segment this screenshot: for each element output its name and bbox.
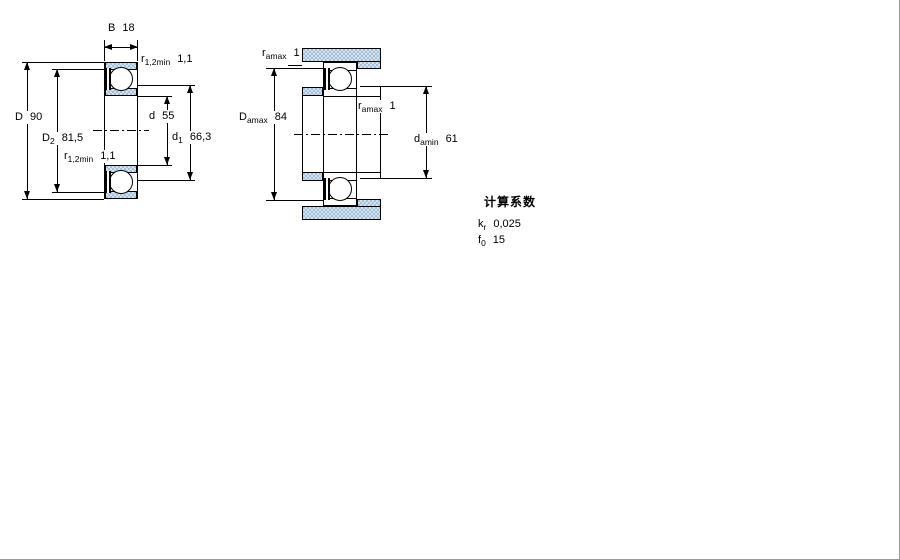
dim-label-D: D90 xyxy=(14,111,43,124)
arrowhead xyxy=(271,68,277,76)
arrowhead xyxy=(24,191,30,199)
dimension-line-da xyxy=(426,86,427,178)
extension-line xyxy=(360,86,432,87)
dimension-line-Da xyxy=(274,68,275,200)
arrowhead xyxy=(423,170,429,178)
arrowhead xyxy=(164,157,170,165)
calculation-factors-title: 计算系数 xyxy=(483,196,537,209)
arrowhead xyxy=(187,172,193,180)
dim-label-r-top: r1,2min1,1 xyxy=(140,53,193,66)
ball-bottom xyxy=(328,177,352,201)
dim-label-ra-top: ramax1 xyxy=(261,47,301,60)
factor-f0: f015 xyxy=(477,234,506,247)
arrowhead xyxy=(54,184,60,192)
dimension-line-D xyxy=(27,62,28,199)
dim-label-D2: D281,5 xyxy=(41,132,84,145)
dim-label-Da: Damax84 xyxy=(238,111,288,124)
arrowhead xyxy=(130,44,138,50)
extension-line xyxy=(22,199,104,200)
housing-block-top xyxy=(302,48,381,62)
dim-label-B: B18 xyxy=(107,22,136,35)
dim-label-d1: d166,3 xyxy=(171,131,212,144)
housing-shoulder-bottom xyxy=(357,199,381,206)
dimension-line-d xyxy=(167,96,168,165)
ball-top xyxy=(109,67,133,91)
arrowhead xyxy=(164,96,170,104)
dim-label-ra-mid: ramax1 xyxy=(357,100,397,113)
shaft-seat-line xyxy=(324,96,380,97)
arrowhead xyxy=(24,62,30,70)
fillet-leader-line xyxy=(288,65,302,66)
arrowhead xyxy=(423,86,429,94)
shaft-shoulder-bottom xyxy=(302,172,323,181)
extension-line xyxy=(138,165,172,166)
arrowhead xyxy=(54,69,60,77)
arrowhead xyxy=(187,85,193,93)
seal-bottom xyxy=(105,171,111,193)
seal-top xyxy=(105,68,111,90)
dim-label-d: d55 xyxy=(148,110,175,123)
ball-bottom xyxy=(109,170,133,194)
centerline-right-view xyxy=(294,134,390,135)
bearing-technical-drawing: B18 r1,2min1,1 D90 D281,5 d55 d166,3 r1,… xyxy=(0,0,900,560)
extension-line xyxy=(52,192,104,193)
extension-line xyxy=(138,180,195,181)
arrowhead xyxy=(104,44,112,50)
seal-top xyxy=(324,68,330,90)
factor-kr: kr0,025 xyxy=(477,218,522,231)
extension-line xyxy=(360,178,432,179)
housing-block-bottom xyxy=(302,206,381,220)
extension-line xyxy=(22,62,104,63)
centerline-left-view xyxy=(93,130,149,131)
ball-top xyxy=(328,67,352,91)
shaft-seat-line xyxy=(324,172,380,173)
housing-shoulder-top xyxy=(357,62,381,69)
seal-bottom xyxy=(324,178,330,200)
extension-line xyxy=(266,200,323,201)
dimension-line-D2 xyxy=(57,69,58,192)
shaft-shoulder-top xyxy=(302,87,323,96)
dim-label-da: damin61 xyxy=(413,133,459,146)
dim-label-r-bottom: r1,2min1,1 xyxy=(63,150,116,163)
arrowhead xyxy=(271,192,277,200)
